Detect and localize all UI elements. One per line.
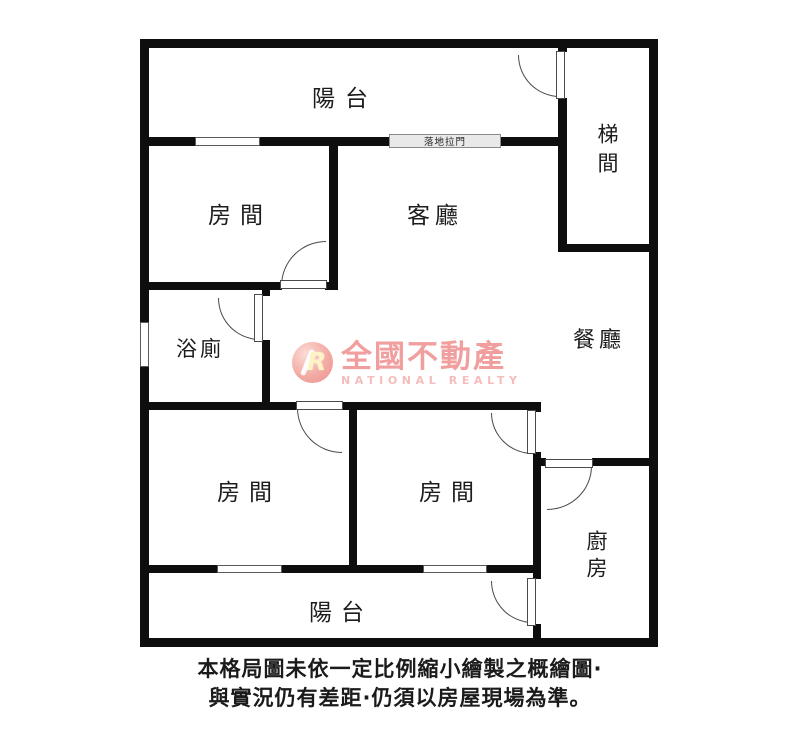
wall-bedroom-tl-right — [329, 137, 338, 290]
disclaimer-line-1: 本格局圖未依一定比例縮小繪製之概繪圖· — [0, 655, 800, 684]
disclaimer-text: 本格局圖未依一定比例縮小繪製之概繪圖· 與實況仍有差距·仍須以房屋現場為準。 — [0, 655, 800, 713]
door-leaf-kitchen — [545, 459, 593, 468]
door-arc-bedroom-bl — [297, 408, 342, 453]
wall-outer-top — [140, 39, 658, 48]
sliding-door: 落地拉門 — [389, 134, 501, 148]
realty-logo-icon: R — [292, 342, 333, 383]
room-label-kitchen: 廚房 — [581, 530, 611, 584]
disclaimer-line-2: 與實況仍有差距·仍須以房屋現場為準。 — [0, 684, 800, 713]
watermark-text: 全國不動產 NATIONAL REALTY — [341, 342, 522, 387]
door-leaf-bedroom-tl — [280, 280, 327, 289]
wall-outer-right — [649, 39, 658, 647]
sliding-door-label: 落地拉門 — [424, 134, 466, 148]
wall-outer-bottom — [140, 638, 658, 647]
window-bathroom-left — [140, 322, 149, 367]
room-label-bedroom-top-left: 房間 — [208, 196, 272, 230]
realty-watermark: R 全國不動產 NATIONAL REALTY — [292, 342, 522, 387]
door-arc-entry — [518, 55, 560, 97]
room-label-living-room: 客廳 — [407, 196, 463, 230]
wall-stairwell-bottom — [558, 244, 658, 252]
room-label-dining-room: 餐廳 — [573, 322, 625, 354]
door-leaf-bedroom-bm — [527, 410, 536, 454]
room-label-bedroom-bottom-middle: 房間 — [419, 473, 483, 507]
door-leaf-bedroom-bl — [296, 401, 343, 410]
door-leaf-balcony-bottom — [527, 578, 536, 626]
door-leaf-bathroom — [254, 294, 263, 342]
wall-between-bedrooms — [349, 402, 357, 573]
window-bedroom-bl — [217, 565, 282, 573]
doorway-bathroom — [262, 296, 270, 340]
brand-name-en: NATIONAL REALTY — [341, 374, 522, 387]
room-label-bathroom: 浴廁 — [176, 333, 224, 363]
door-arc-kitchen — [547, 466, 592, 510]
door-leaf-entry — [556, 51, 565, 99]
floor-plan-canvas: 落地拉門 陽台 梯間 房間 客廳 浴廁 餐廳 房間 房間 廚房 陽台 R 全 — [0, 0, 800, 733]
room-label-bedroom-bottom-left: 房間 — [217, 473, 281, 507]
logo-letter: R — [307, 347, 326, 376]
brand-name-cjk: 全國不動產 — [341, 342, 522, 372]
window-balcony-top — [195, 137, 260, 146]
room-label-balcony-top: 陽台 — [312, 79, 378, 113]
window-bedroom-bm — [423, 565, 487, 573]
room-label-stairwell: 梯間 — [592, 123, 622, 181]
room-label-balcony-bottom: 陽台 — [309, 593, 373, 627]
